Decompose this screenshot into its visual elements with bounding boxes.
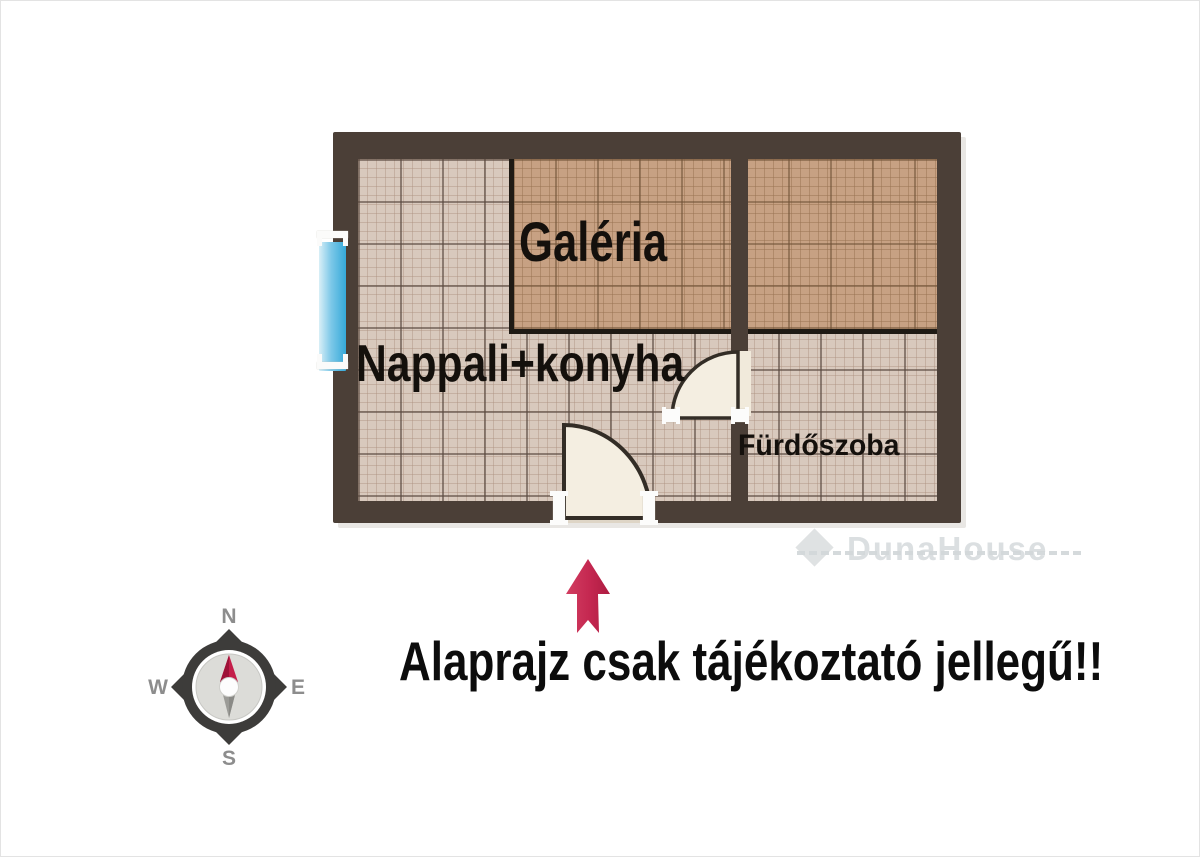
floor-plan: Galéria Nappali+konyha Fürdőszoba DunaHo… [333,132,961,523]
watermark-diamond-icon [795,528,833,566]
window [319,242,346,371]
window-cap-bottom [317,362,348,369]
room-label-furdoszoba: Fürdőszoba [738,431,900,461]
disclaimer-text: Alaprajz csak tájékoztató jellegű!! [399,634,1103,689]
bathroom-jamb-right [732,409,748,422]
compass-north-label: N [221,605,236,629]
room-label-nappali-konyha: Nappali+konyha [356,338,684,390]
compass-rose-icon: N W E S [144,598,314,778]
compass-east-label: E [291,676,305,700]
entrance-jamb-right [643,493,655,523]
compass-south-label: S [222,747,236,771]
window-cap-top [317,231,348,238]
watermark: DunaHouse [795,528,1095,574]
north-arrow-icon [561,557,615,639]
room-label-galeria: Galéria [519,214,667,270]
watermark-dashed-line [797,551,1081,555]
entrance-door [564,425,651,518]
watermark-text: DunaHouse [847,530,1048,568]
compass-west-label: W [148,676,168,700]
entrance-jamb-left [553,493,565,523]
floor-plan-image: Galéria Nappali+konyha Fürdőszoba DunaHo… [0,0,1200,857]
bathroom-jamb-left [663,409,679,422]
door-swings [333,132,961,523]
